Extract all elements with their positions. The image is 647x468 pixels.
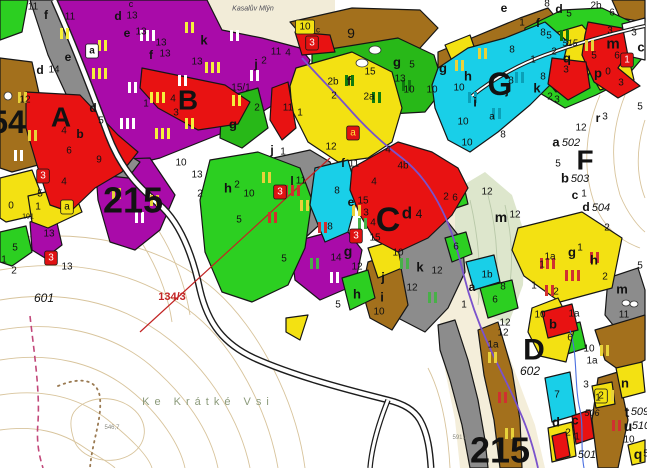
stand-hatch-bar [428, 292, 431, 303]
map-label: d [89, 101, 96, 115]
map-label: 2 [604, 223, 610, 234]
map-label: 12 [406, 283, 418, 294]
map-label: 14 [48, 65, 60, 76]
stand-hatch-bar [565, 270, 568, 281]
map-label: 2 [553, 287, 559, 298]
map-label: 5 [591, 51, 597, 62]
stand-hatch-bar [306, 200, 309, 211]
stand-hatch-bar [585, 40, 588, 51]
map-label: 4 [61, 177, 67, 188]
map-label: a [552, 135, 560, 150]
map-label: 1a [544, 252, 556, 263]
map-label: 1 [1, 255, 7, 266]
map-label: 2b [590, 1, 602, 12]
map-label: e [65, 50, 72, 64]
map-label: 12 [481, 187, 493, 198]
map-label: g [393, 55, 401, 70]
map-label: 12 [431, 266, 443, 277]
map-label: g [344, 243, 353, 259]
map-label: q [563, 51, 571, 66]
map-label: 13 [191, 170, 203, 181]
map-label: 1a [487, 340, 499, 351]
map-label: 6 [453, 242, 459, 253]
stand-hatch-bar [318, 222, 321, 233]
map-label: 2 [443, 192, 449, 203]
stand-hatch-bar [577, 270, 580, 281]
stand-hatch-bar [28, 130, 31, 141]
map-label: 6 [614, 51, 620, 62]
map-label: 2 [254, 103, 260, 114]
map-label: 1a [586, 356, 598, 367]
spot-height-546: 546,7 [104, 425, 120, 431]
map-label: 4 [170, 94, 176, 105]
map-label: 3 [583, 380, 589, 391]
map-label: 8 [500, 282, 506, 293]
stand-hatch-bar [167, 128, 170, 139]
map-label: 10 [175, 158, 187, 169]
map-label: 0 [605, 67, 611, 78]
map-label: 6 [66, 146, 72, 157]
map-label: 4 [61, 126, 67, 137]
map-label: f [347, 74, 352, 89]
stand-hatch-bar [256, 70, 259, 81]
stand-hatch-bar [126, 118, 129, 129]
map-label: 5 [637, 261, 643, 272]
stand-hatch-bar [191, 118, 194, 129]
map-label: 501 [578, 449, 596, 461]
map-label: 1 [531, 281, 537, 292]
spot-height-602: 602 [520, 364, 540, 378]
map-label: 506 [584, 408, 599, 418]
map-label: 3 [363, 208, 369, 219]
map-label: 2 [197, 189, 203, 200]
map-label: 2 [11, 266, 17, 277]
map-label: 5 [643, 449, 647, 460]
stand-hatch-bar [330, 272, 333, 283]
map-label: n [621, 376, 629, 391]
map-label: 12 [325, 142, 337, 153]
map-label: 1 [539, 260, 545, 271]
map-label: 12 [351, 262, 363, 273]
map-label: 1 [461, 300, 467, 311]
map-label: a [350, 128, 356, 139]
stand-hatch-bar [400, 258, 403, 269]
map-label: 1b [481, 270, 493, 281]
map-label: k [533, 81, 541, 96]
map-label: e [348, 195, 355, 209]
map-label: 12 [509, 210, 521, 221]
stand-hatch-bar [488, 352, 491, 363]
map-label: 5 [12, 243, 18, 254]
stand-group-label-d: D [523, 334, 545, 367]
map-label: 8 [500, 130, 506, 141]
map-label: d [402, 204, 412, 223]
map-label: 3 [563, 65, 569, 76]
map-label: h [224, 181, 232, 196]
map-label: 1 [519, 18, 525, 29]
parcel-label-215: 215 [103, 180, 163, 221]
map-label: 4 [371, 177, 377, 188]
map-label: 3 [353, 231, 359, 242]
map-label: 2 [551, 47, 557, 58]
map-label: 2a [363, 92, 375, 103]
map-label: 3 [554, 95, 560, 106]
map-label: 5 [555, 159, 561, 170]
map-label: 10 [243, 189, 255, 200]
map-label: j [269, 143, 273, 157]
map-label: d [555, 2, 562, 16]
cadastral-label-134-3: 134/3 [158, 291, 186, 303]
map-label: q [634, 446, 643, 462]
map-label: k [416, 260, 424, 275]
stand-hatch-bar [98, 68, 101, 79]
stand-hatch-bar [161, 128, 164, 139]
map-label: k [200, 33, 208, 48]
stand-hatch-bar [297, 185, 300, 196]
map-label: l [290, 174, 293, 188]
stand-hatch-bar [14, 150, 17, 161]
map-label: 11 [349, 159, 360, 170]
stand-hatch-bar [262, 172, 265, 183]
glade-symbol [4, 92, 12, 100]
map-label: a [489, 112, 495, 123]
road-number-515: 515 [562, 38, 578, 48]
map-label: 1 [624, 55, 630, 66]
glade-symbol [630, 301, 638, 307]
map-label: g [439, 61, 447, 76]
stand-hatch-bar [104, 40, 107, 51]
map-label: 3 [618, 78, 624, 89]
stand-hatch-bar [606, 345, 609, 356]
map-label: 10 [534, 310, 546, 321]
map-label: 8 [540, 72, 546, 83]
map-label: 5 [546, 31, 552, 42]
map-label: 8 [509, 45, 515, 56]
map-canvas[interactable]: 11f11cd13e1313f1313ead14kKasalův Mlýn125… [0, 0, 647, 468]
parcel-label-54: 54 [0, 104, 26, 140]
map-label: a [64, 202, 70, 213]
map-label: 3 [48, 253, 54, 264]
stand-hatch-bar [310, 258, 313, 269]
map-label: 11 [65, 12, 76, 23]
map-label: g [568, 245, 576, 260]
map-label: 5 [335, 300, 341, 311]
stand-hatch-bar [156, 92, 159, 103]
map-label: 13 [126, 11, 138, 22]
map-label: i [380, 290, 384, 305]
map-label: b [549, 317, 557, 332]
map-label: 8 [327, 222, 333, 233]
glade-symbol [369, 46, 381, 54]
spot-height-591: 591,3 [452, 435, 468, 441]
map-label: 10 [453, 83, 465, 94]
map-label: 10 [426, 85, 438, 96]
stand-hatch-bar [468, 92, 471, 103]
stand-hatch-bar [217, 62, 220, 73]
map-label: 2 [234, 180, 240, 191]
map-label: i [473, 95, 477, 110]
map-label: 3 [631, 28, 637, 39]
map-label: h [590, 253, 598, 268]
map-label: 3 [40, 171, 46, 182]
map-label: 13 [159, 49, 171, 60]
map-label: 101 [22, 214, 34, 221]
map-label: 10 [403, 85, 415, 96]
stand-hatch-bar [185, 118, 188, 129]
map-label: 1 [280, 147, 286, 158]
stand-hatch-bar [336, 272, 339, 283]
map-label: 504 [592, 202, 610, 214]
map-label: e [501, 1, 508, 15]
stand-hatch-bar [120, 118, 123, 129]
stand-hatch-bar [504, 392, 507, 403]
stand-hatch-bar [364, 218, 367, 229]
map-label: d [114, 9, 121, 23]
map-label: p [594, 66, 602, 81]
map-label: 13 [135, 27, 147, 38]
stand-hatch-bar [494, 352, 497, 363]
map-label: 13 [394, 74, 406, 85]
map-label: 8 [508, 76, 514, 87]
map-label: 2 [547, 92, 553, 103]
stand-hatch-bar [545, 285, 548, 296]
map-label: 1 [35, 202, 41, 213]
stand-hatch-bar [128, 82, 131, 93]
stand-group-label-f: F [576, 145, 593, 176]
stand-hatch-bar [250, 70, 253, 81]
map-label: 510 [632, 420, 647, 432]
map-label: 2b [327, 77, 339, 88]
map-label: 15 [364, 67, 376, 78]
map-label: d [582, 200, 589, 214]
map-label: j [380, 270, 385, 285]
stand-hatch-bar [34, 130, 37, 141]
glade-symbol [622, 300, 630, 306]
stand-hatch-bar [618, 420, 621, 431]
stand-group-label-c: C [376, 201, 401, 239]
stand-hatch-bar [155, 128, 158, 139]
map-label: 3 [309, 38, 315, 49]
stand-hatch-bar [406, 258, 409, 269]
map-label: 5 [409, 60, 415, 71]
stand-hatch-bar [92, 68, 95, 79]
map-label: 2 [602, 272, 608, 283]
map-label: 3 [277, 187, 283, 198]
stand-hatch-bar [150, 92, 153, 103]
map-label: e [124, 26, 131, 40]
stand-group-label-b: B [178, 85, 198, 116]
stand-hatch-bar [611, 390, 614, 401]
map-label: 6 [609, 8, 615, 19]
spot-height-601: 601 [34, 291, 54, 305]
stand-hatch-bar [211, 62, 214, 73]
map-label: 1 [530, 55, 536, 66]
map-label: 11 [28, 2, 39, 13]
stand-hatch-bar [66, 28, 69, 39]
map-label: 11 [271, 47, 282, 58]
map-label: j [253, 57, 257, 71]
map-label: 13 [191, 57, 203, 68]
map-label: 9 [347, 25, 355, 41]
map-label: 13 [61, 262, 73, 273]
stand-hatch-bar [455, 60, 458, 71]
map-label: 3 [173, 108, 179, 119]
stand-hatch-bar [134, 82, 137, 93]
stand-hatch-bar [515, 72, 518, 83]
map-label: g [229, 117, 237, 132]
map-label: 1 [577, 243, 583, 254]
stand-hatch-bar [205, 62, 208, 73]
map-label: 6 [452, 193, 458, 204]
stand-hatch-bar [484, 48, 487, 59]
map-label: m [616, 282, 628, 297]
stand-hatch-bar [434, 292, 437, 303]
stand-hatch-bar [236, 30, 239, 41]
map-label: 12 [575, 123, 587, 134]
stand-hatch-bar [230, 30, 233, 41]
map-label: d [36, 63, 43, 77]
stand-hatch-bar [300, 200, 303, 211]
map-label: 10 [299, 22, 311, 33]
map-label: 10 [583, 344, 595, 355]
map-label: 10 [461, 138, 473, 149]
map-label: a [89, 46, 95, 57]
map-label: 4 [385, 145, 391, 156]
stand-hatch-bar [600, 345, 603, 356]
stand-hatch-bar [238, 95, 241, 106]
map-label: 1 [581, 189, 587, 200]
map-label: 6 [567, 333, 573, 344]
map-label: c [637, 40, 644, 55]
map-label: c [571, 413, 578, 428]
map-label: j [504, 83, 508, 97]
map-label: 4b [397, 161, 409, 172]
map-label: 1 [143, 99, 149, 110]
map-label: 5 [281, 254, 287, 265]
stand-hatch-bar [104, 68, 107, 79]
map-label: 10 [457, 117, 469, 128]
map-label: 15/1 [231, 83, 251, 94]
place-name-kasaluv-mlyn: Kasalův Mlýn [232, 5, 274, 13]
map-label: h [464, 69, 472, 84]
stand-hatch-bar [571, 270, 574, 281]
map-label: b [561, 171, 569, 186]
stand-hatch-bar [358, 205, 361, 216]
map-label: 6 [492, 295, 498, 306]
stand-hatch-bar [591, 40, 594, 51]
map-label: a [469, 280, 476, 294]
map-label: 503 [571, 173, 590, 185]
map-label: 3 [602, 112, 608, 123]
map-label: 10 [373, 307, 385, 318]
map-label: 2 [261, 56, 267, 67]
map-label: 13 [43, 229, 55, 240]
map-label: 4 [416, 207, 423, 221]
map-label: 8 [544, 0, 550, 10]
stand-hatch-bar [498, 392, 501, 403]
map-label: 10 [392, 248, 404, 259]
stand-hatch-bar [132, 118, 135, 129]
map-label: 509 [631, 406, 647, 418]
stand-hatch-bar [185, 22, 188, 33]
map-label: 5 [37, 189, 43, 200]
map-label: h [353, 287, 361, 302]
map-label: 11 [296, 176, 307, 187]
map-label: c [572, 188, 579, 202]
map-label: 10 [623, 435, 635, 446]
map-label: 5 [98, 116, 104, 127]
map-label: 5 [566, 9, 572, 20]
map-label: 2 [331, 91, 337, 102]
stand-hatch-bar [478, 48, 481, 59]
place-name-ke-kratke-vsi: Ke Krátké Vsi [142, 396, 274, 408]
map-label: 1 [595, 393, 601, 404]
stand-hatch-bar [268, 212, 271, 223]
stand-hatch-bar [521, 72, 524, 83]
map-label: 5 [236, 215, 242, 226]
stand-hatch-bar [191, 22, 194, 33]
map-label: 1 [297, 108, 303, 119]
stand-hatch-bar [612, 420, 615, 431]
map-label: m [495, 209, 507, 225]
stand-hatch-bar [316, 258, 319, 269]
map-label: 7 [554, 390, 560, 401]
map-label: 0 [8, 201, 14, 212]
map-label: 1 [574, 432, 580, 443]
stand-hatch-bar [162, 92, 165, 103]
map-label: 1a [568, 309, 580, 320]
map-label: 15 [357, 196, 369, 207]
stand-hatch-bar [498, 108, 501, 119]
map-label: 13 [155, 38, 167, 49]
stand-hatch-bar [268, 172, 271, 183]
map-label: 12 [497, 328, 509, 339]
stand-hatch-bar [20, 150, 23, 161]
map-label: c [316, 26, 320, 35]
stand-hatch-bar [60, 28, 63, 39]
stand-hatch-bar [232, 95, 235, 106]
map-label: 2 [565, 428, 571, 439]
map-label: 11 [283, 103, 294, 114]
map-label: 9 [96, 155, 102, 166]
map-label: r [596, 111, 601, 125]
map-label: c [129, 0, 134, 9]
stand-hatch-bar [378, 92, 381, 103]
forest-stand-map[interactable]: 11f11cd13e1313f1313ead14kKasalův Mlýn125… [0, 0, 647, 468]
map-label: b [76, 127, 83, 141]
map-label: 4 [285, 48, 291, 59]
stand-hatch-bar [274, 212, 277, 223]
map-label: 5 [637, 102, 643, 113]
stand-hatch-bar [358, 218, 361, 229]
map-label: 14 [330, 253, 342, 264]
map-label: d [552, 415, 560, 430]
stand-hatch-bar [351, 75, 354, 86]
map-label: 11 [619, 310, 630, 321]
parcel-label-215-b: 215 [470, 430, 530, 468]
map-label: 8 [334, 186, 340, 197]
